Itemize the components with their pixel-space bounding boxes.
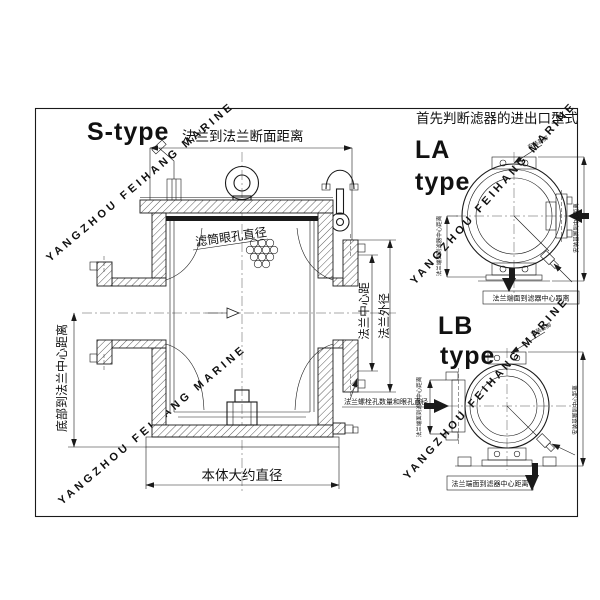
lb-title-type: type	[440, 342, 495, 370]
pipe-wall	[112, 340, 166, 348]
dim-flange-to-flange-label: 法兰到法兰断面距离	[182, 128, 304, 144]
la-radius-line	[514, 216, 549, 251]
lb-bottom-dim-label: 法兰端面到滤器中心距离	[452, 479, 529, 488]
flow-arrow	[205, 308, 239, 318]
la-bottom-dim-label: 法兰端面到滤器中心距离	[493, 294, 570, 303]
dim-flange-center-label: 法兰中心距	[357, 282, 371, 340]
pipe-wall	[333, 278, 343, 286]
vessel-wall	[318, 348, 333, 425]
watermark-layer: YANGZHOU FEIHANG MARINE YANGZHOU FEIHANG…	[44, 100, 579, 508]
s-type-section-view: 法兰到法兰断面距离	[54, 128, 434, 492]
dim-flange-od-label: 法兰外径	[377, 293, 391, 339]
lb-vent-fitting	[537, 434, 556, 453]
bottom-skirt	[146, 437, 339, 447]
la-title: LA	[415, 136, 450, 164]
s-type-title: S-type	[87, 118, 169, 146]
lb-radius-line	[507, 406, 537, 436]
drain-cock	[333, 423, 358, 434]
lb-title: LB	[438, 312, 473, 340]
drawing-sheet: YANGZHOU FEIHANG MARINE YANGZHOU FEIHANG…	[0, 0, 600, 600]
la-side-flange	[546, 190, 572, 243]
vessel-wall	[152, 213, 166, 278]
la-left-dim-label: 法兰端面到滤器中心距离	[435, 215, 443, 276]
pipe-wall	[333, 340, 343, 348]
pipe-wall	[112, 278, 166, 286]
dim-body-dia-label: 本体大约直径	[202, 468, 283, 483]
leader-line	[554, 264, 572, 282]
rule-note: 首先判断滤器的进出口型式	[416, 111, 578, 126]
la-top-view: LA type	[415, 133, 589, 304]
cover-gasket	[163, 216, 320, 221]
lb-right-dim-label: 安装基脚到中心距离	[571, 385, 579, 435]
bottom-plate	[152, 425, 333, 437]
leader-line	[552, 444, 575, 455]
watermark-text: YANGZHOU FEIHANG MARINE	[401, 295, 571, 482]
strainer-drawing-svg: YANGZHOU FEIHANG MARINE YANGZHOU FEIHANG…	[0, 0, 600, 600]
la-right-dim-label: 安装基脚到中心距离	[572, 203, 580, 253]
bolt-note-label: 法兰螺栓孔数量和眼孔直径	[344, 397, 428, 406]
cover-plate	[140, 200, 333, 213]
vessel-wall	[318, 213, 333, 278]
dim-bottom-to-center-label: 底部到法兰中心距离	[54, 324, 69, 432]
lb-left-dim-label: 法兰端面到滤器中心距离	[415, 376, 423, 437]
vessel-wall	[152, 348, 166, 425]
lb-bottom-foot	[455, 448, 558, 466]
basket-hole-cluster	[246, 239, 278, 268]
lb-top-view: LB type	[415, 312, 583, 491]
la-title-type: type	[415, 168, 470, 196]
